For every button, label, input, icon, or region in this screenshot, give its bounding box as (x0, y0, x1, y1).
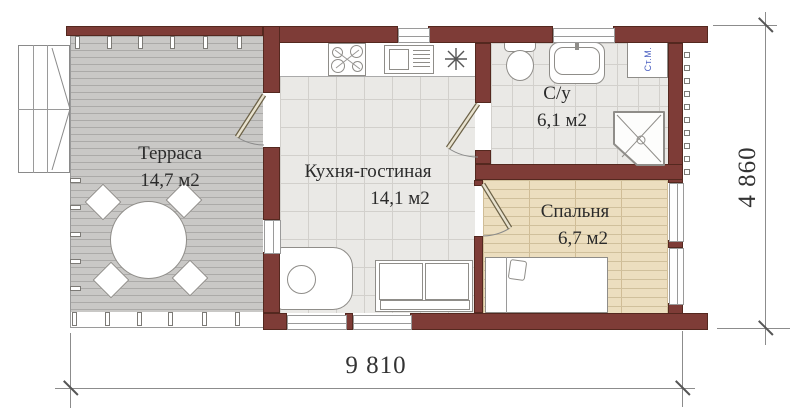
sofa-back-cushion (379, 263, 423, 300)
terrace-top-rail (66, 26, 263, 36)
wall-top (428, 26, 553, 43)
wall-texture-bump (684, 169, 690, 175)
kitchen-counter (280, 43, 475, 77)
railing-post (138, 36, 143, 49)
bed-headboard-line (506, 257, 507, 313)
dimension-width-value: 9 810 (296, 352, 456, 380)
wall-texture-bump (684, 104, 690, 110)
extension-line (717, 328, 790, 329)
room-name: Кухня-гостиная (278, 158, 458, 185)
railing-post (168, 312, 173, 326)
railing-post (72, 312, 77, 326)
table-stool (287, 265, 316, 294)
dimension-line-bottom (55, 388, 695, 389)
window-bedroom-east-2 (669, 248, 684, 305)
wall-texture-bump (684, 65, 690, 71)
terrace-bottom-edge (70, 327, 263, 328)
sofa-seat (380, 300, 470, 310)
stove-burner (350, 45, 363, 58)
wall-top (263, 26, 398, 43)
washbasin-bowl (554, 47, 600, 75)
wall-bathroom-bedroom (475, 164, 683, 180)
railing-post (75, 36, 80, 49)
railing-post (202, 312, 207, 326)
railing-post (237, 36, 242, 49)
floor-plan: Ст.М. (0, 0, 800, 417)
wall-texture-bump (684, 52, 690, 58)
wall-texture-bump (684, 91, 690, 97)
stove-burner (352, 61, 363, 72)
terrace-round-table (110, 201, 187, 279)
wall-texture-bump (684, 78, 690, 84)
sofa-back-cushion (425, 263, 469, 300)
room-label-bathroom: С/у 6,1 м2 (502, 80, 612, 134)
room-area: 6,1 м2 (507, 107, 617, 134)
wall-texture-bump (684, 117, 690, 123)
washing-machine-label: Ст.М. (643, 39, 653, 79)
window-kitchen-west (264, 220, 281, 254)
railing-post (235, 312, 240, 326)
railing-post (107, 36, 112, 49)
railing-post (70, 205, 81, 210)
extension-line (70, 333, 71, 408)
room-area: 14,1 м2 (310, 185, 490, 212)
wall-bathroom-west-pier (475, 150, 491, 164)
window-kitchen-south-1 (287, 315, 347, 330)
dimension-height-value: 4 860 (734, 117, 762, 237)
window-kitchen-north (398, 28, 430, 43)
window-kitchen-south-2 (353, 315, 412, 330)
stair-mid-line (18, 109, 70, 110)
wall-texture-bump (684, 143, 690, 149)
sink-drainer (413, 50, 430, 70)
bed-pillow (508, 259, 528, 281)
wall-bottom (263, 313, 287, 330)
wall-kitchen-west (263, 252, 280, 313)
extension-line (682, 331, 683, 407)
room-name: Терраса (95, 140, 245, 167)
stove-burner (332, 47, 343, 58)
room-name: Спальня (500, 198, 650, 225)
railing-post (203, 36, 208, 49)
wall-top (613, 26, 708, 43)
railing-post (137, 312, 142, 326)
railing-post (70, 259, 81, 264)
wall-kitchen-west (263, 26, 280, 93)
window-bedroom-east-1 (669, 183, 684, 242)
toilet-bowl (506, 50, 534, 81)
railing-post (70, 178, 81, 183)
wall-texture-bump (684, 130, 690, 136)
railing-post (70, 232, 81, 237)
room-label-kitchen-living: Кухня-гостиная 14,1 м2 (278, 158, 458, 212)
railing-post (170, 36, 175, 49)
dimension-line-right (765, 12, 766, 345)
bed (485, 257, 608, 313)
kitchen-sink-basin (389, 49, 409, 70)
room-area: 14,7 м2 (95, 167, 245, 194)
wall-bathroom-west (475, 43, 491, 103)
wall-texture-bump (684, 156, 690, 162)
room-name: С/у (502, 80, 612, 107)
wall-bottom (410, 313, 708, 330)
stove-burner (331, 59, 345, 73)
room-label-bedroom: Спальня 6,7 м2 (500, 198, 650, 252)
wall-east (668, 43, 683, 183)
wall-bedroom-west (474, 236, 483, 313)
railing-post (70, 286, 81, 291)
room-label-terrace: Терраса 14,7 м2 (95, 140, 245, 194)
room-area: 6,7 м2 (508, 225, 658, 252)
railing-post (105, 312, 110, 326)
window-bathroom-north (553, 28, 615, 43)
